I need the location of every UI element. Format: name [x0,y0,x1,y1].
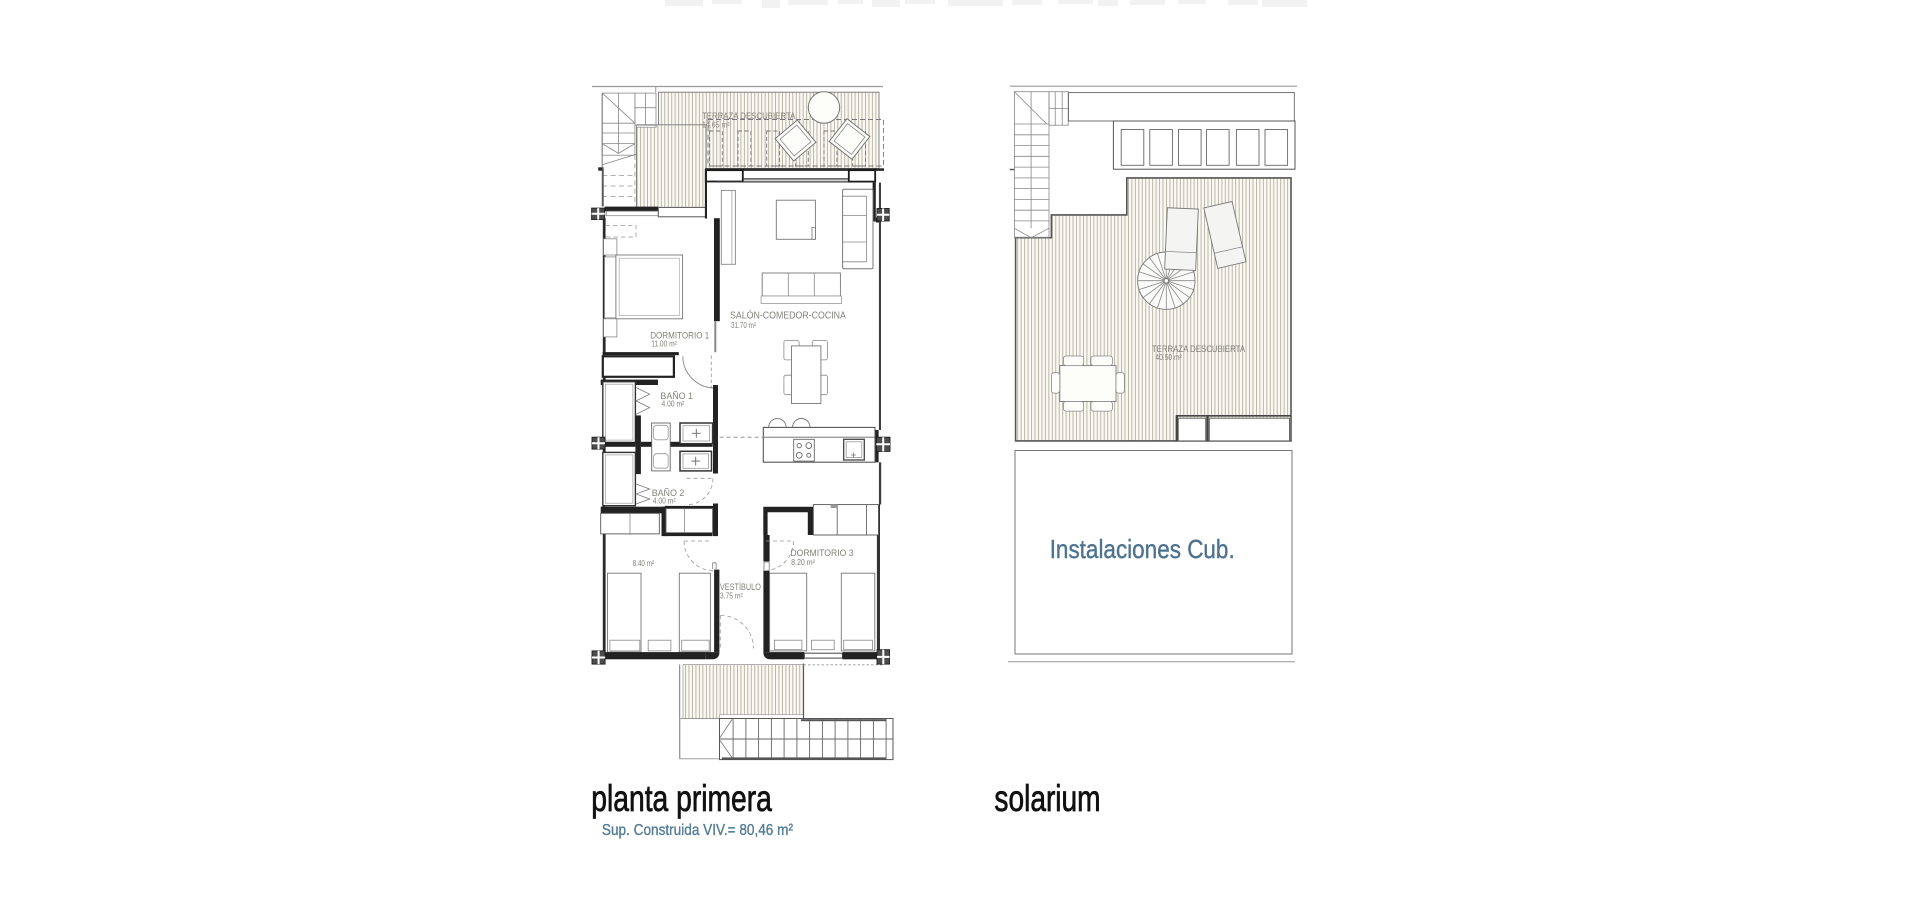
svg-text:4.00 m²: 4.00 m² [653,496,676,505]
svg-text:planta primera: planta primera [591,778,772,819]
svg-text:11.00 m²: 11.00 m² [651,339,677,348]
svg-text:40.50 m²: 40.50 m² [1155,353,1182,362]
svg-text:8.20 m²: 8.20 m² [791,558,815,567]
svg-text:SALÓN-COMEDOR-COCINA: SALÓN-COMEDOR-COCINA [730,309,846,322]
svg-text:Sup. Construida VIV.= 80,46 m²: Sup. Construida VIV.= 80,46 m² [602,822,794,839]
svg-text:31.70 m²: 31.70 m² [731,321,756,330]
svg-text:8.40 m²: 8.40 m² [633,559,655,568]
svg-text:Instalaciones Cub.: Instalaciones Cub. [1050,534,1235,564]
svg-text:3.75 m²: 3.75 m² [720,591,743,600]
svg-text:4.00 m²: 4.00 m² [662,400,685,409]
svg-text:14.65 m²: 14.65 m² [702,120,730,129]
svg-text:solarium: solarium [994,778,1100,819]
